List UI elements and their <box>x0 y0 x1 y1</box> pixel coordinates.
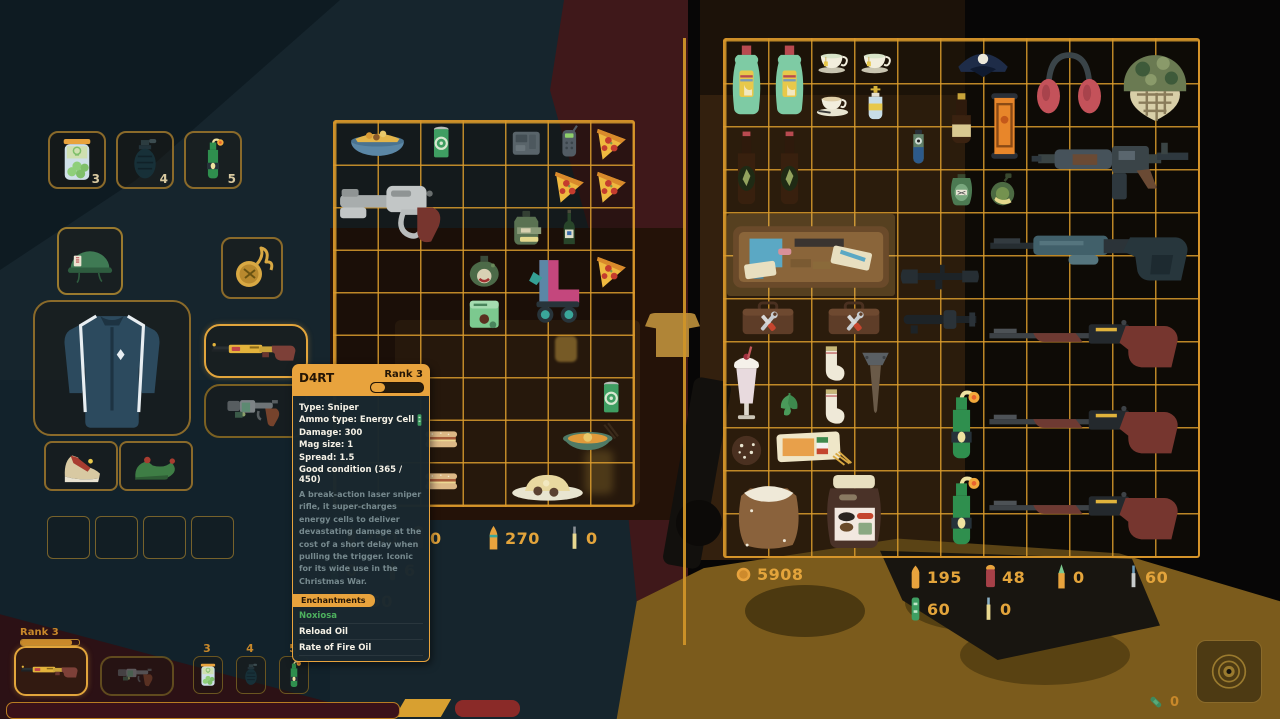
inventory-item-hunting-rifle[interactable] <box>983 384 1198 470</box>
inventory-item-suppressor[interactable] <box>897 298 983 341</box>
inventory-item-assault-rifle[interactable] <box>1026 126 1198 212</box>
grenade-icon <box>240 660 262 690</box>
inventory-item-eye-bottle[interactable] <box>897 126 940 169</box>
item-tooltip: D4RT Rank 3 Type: SniperAmmo type: Energ… <box>292 364 430 662</box>
ammo-count: 195 <box>927 568 962 587</box>
enchantment-noxiosa: Noxiosa <box>299 608 423 624</box>
bullet-pistol-icon <box>909 563 922 591</box>
inventory-item-pizza-slice[interactable] <box>548 165 591 208</box>
inventory-item-molotov[interactable] <box>940 470 983 556</box>
inventory-item-sock[interactable] <box>811 341 854 384</box>
inventory-item-sock[interactable] <box>811 384 854 427</box>
stash-ammo-bullet-rifle-pointed: 0 <box>1055 563 1085 591</box>
tooltip-header: D4RT Rank 3 <box>292 364 430 396</box>
coin-icon <box>735 566 752 583</box>
stash-ammo-cell-green: 60 <box>909 595 950 623</box>
item-count: 3 <box>92 172 100 186</box>
tooltip-body: Type: SniperAmmo type: Energy CellDamage… <box>292 396 430 662</box>
tooltip-item-name: D4RT <box>299 371 334 385</box>
game-inventory-screen: { "colors": { "accent_orange": "#d9992b"… <box>0 0 1280 719</box>
hotbar-slot-primary[interactable] <box>14 646 88 696</box>
hud-rank-fill <box>21 640 72 645</box>
ammo-count: 48 <box>1002 568 1025 587</box>
rank-progress-fill <box>371 383 385 392</box>
empty-slot[interactable] <box>95 516 138 559</box>
hud-accent-blob <box>455 700 520 717</box>
ammo-count: 0 <box>586 529 598 548</box>
player-ammo-bullet-rifle: 270 <box>487 524 540 552</box>
inventory-item-small-bottle[interactable] <box>940 83 983 169</box>
stash-inventory-grid[interactable] <box>723 38 1200 558</box>
inventory-item-drill-case[interactable] <box>725 212 897 298</box>
health-bar <box>6 702 400 719</box>
pocket-watch-icon <box>227 243 277 293</box>
tooltip-description: A break-action laser sniper rifle, it su… <box>299 489 423 588</box>
elf-shoe-icon <box>125 447 187 485</box>
bullet-thin-blue-icon <box>1127 563 1140 591</box>
tooltip-stat: Type: Sniper <box>299 403 423 413</box>
d4rt-rifle-icon <box>210 330 302 372</box>
quick-slot-grenade[interactable]: 4 <box>116 131 174 189</box>
empty-slot[interactable] <box>47 516 90 559</box>
inventory-item-spike[interactable] <box>854 341 897 427</box>
jacket-icon <box>53 304 171 432</box>
inventory-item-camo-helmet[interactable] <box>1112 40 1198 126</box>
equip-slot-shoe-left[interactable] <box>44 441 118 491</box>
equip-slot-head[interactable] <box>57 227 123 295</box>
ammo-count: 60 <box>1145 568 1168 587</box>
hotbar-slot-grenade[interactable] <box>236 656 266 694</box>
inventory-item-hunting-rifle[interactable] <box>983 298 1198 384</box>
inventory-item-police-hat[interactable] <box>940 40 1026 83</box>
quick-slot-molotov[interactable]: 5 <box>184 131 242 189</box>
bg-hand-shade1 <box>745 585 865 637</box>
hotbar-slot-secondary[interactable] <box>100 656 174 696</box>
tooltip-stats: Type: SniperAmmo type: Energy CellDamage… <box>299 403 423 486</box>
bandage-count: 0 <box>1170 695 1179 710</box>
inventory-item-canteen[interactable] <box>983 169 1026 212</box>
player-ammo-bullet-thin: 0 <box>568 524 598 552</box>
hotbar-key-label: 3 <box>193 642 221 655</box>
inventory-item-pizza-slice[interactable] <box>590 122 633 165</box>
inventory-item-beer-bottle[interactable] <box>768 126 811 212</box>
inventory-item-soup-bowl[interactable] <box>548 420 633 463</box>
equip-slot-shoe-right[interactable] <box>119 441 193 491</box>
tooltip-stat: Ammo type: Energy Cell <box>299 415 423 425</box>
ammo-count: 0 <box>1073 568 1085 587</box>
hud-rank-bar <box>20 639 80 646</box>
sneaker-icon <box>50 447 112 485</box>
inventory-item-dish-soap[interactable] <box>725 40 768 126</box>
d4rt-rifle-icon <box>20 652 82 690</box>
bandage-icon <box>1148 694 1164 710</box>
stash-money: 5908 <box>735 565 804 584</box>
inventory-item-pasta-pack[interactable] <box>768 427 854 470</box>
inventory-item-pizza-slice[interactable] <box>590 165 633 208</box>
ammo-count: 0 <box>430 529 442 548</box>
ammo-count: 0 <box>1000 600 1012 619</box>
inventory-item-rice-plate[interactable] <box>505 462 590 505</box>
inventory-item-mint-leaf[interactable] <box>768 384 811 427</box>
inventory-item-detector[interactable] <box>548 122 591 165</box>
enchantment-rate-of-fire-oil: Rate of Fire Oil <box>299 640 423 656</box>
tooltip-stat: Spread: 1.5 <box>299 453 423 463</box>
quick-slot-pickle-jar[interactable]: 3 <box>48 131 106 189</box>
inventory-item-molotov[interactable] <box>940 384 983 470</box>
inventory-item-cookie[interactable] <box>725 427 768 470</box>
inventory-item-choco-jar[interactable] <box>811 470 897 556</box>
hud-rank-label: Rank 3 <box>20 627 59 638</box>
inventory-item-hunting-rifle[interactable] <box>983 470 1198 556</box>
inventory-item-toolbox[interactable] <box>811 298 897 341</box>
enchantments-list: NoxiosaReload OilRate of Fire Oil <box>299 608 423 656</box>
inventory-item-beer-bottle[interactable] <box>725 126 768 212</box>
bandage-counter: 0 <box>1148 694 1179 710</box>
tooltip-stat: Mag size: 1 <box>299 440 423 450</box>
inventory-item-teacup[interactable] <box>854 40 897 83</box>
ammo-count: 270 <box>505 529 540 548</box>
empty-slot[interactable] <box>191 516 234 559</box>
rank-progress-bar <box>370 382 424 393</box>
inventory-item-flour-sack[interactable] <box>725 470 811 556</box>
molotov-icon <box>283 660 305 690</box>
equip-slot-trinket[interactable] <box>221 237 283 299</box>
stash-ammo-bullet-pistol: 195 <box>909 563 962 591</box>
tooltip-stat: Damage: 300 <box>299 428 423 438</box>
bullet-thin-gray-icon <box>982 595 995 623</box>
inventory-item-bowl-of-chips[interactable] <box>335 122 420 165</box>
inventory-item-ammo-box[interactable] <box>463 292 506 335</box>
empty-slot[interactable] <box>143 516 186 559</box>
money-count: 5908 <box>757 565 804 584</box>
item-count: 5 <box>228 172 236 186</box>
inventory-item-milkshake[interactable] <box>725 341 768 427</box>
inventory-item-flask[interactable] <box>940 169 983 212</box>
ammo-count: 60 <box>927 600 950 619</box>
inventory-item-teacup[interactable] <box>811 40 854 83</box>
stash-ammo-shell-red: 48 <box>984 563 1025 591</box>
radio-record-button[interactable] <box>1196 640 1262 703</box>
hotbar-key-label: 4 <box>236 642 264 655</box>
stash-ammo-bullet-thin-gray: 0 <box>982 595 1012 623</box>
inventory-item-green-can[interactable] <box>420 122 463 165</box>
cell-green-icon <box>909 595 922 623</box>
revolver-icon <box>210 390 302 432</box>
item-count: 4 <box>160 172 168 186</box>
bullet-rifle-icon <box>487 524 500 552</box>
inventory-item-wine-bottle[interactable] <box>548 207 591 250</box>
shell-red-icon <box>984 563 997 591</box>
inventory-item-gray-device[interactable] <box>505 122 548 165</box>
inventory-item-coffee-cup[interactable] <box>811 83 854 126</box>
inventory-item-toolbox[interactable] <box>725 298 811 341</box>
inventory-item-pizza-slice[interactable] <box>590 250 633 293</box>
enchantments-label: Enchantments <box>293 594 375 607</box>
record-icon <box>1205 649 1253 694</box>
inventory-item-roller-skates[interactable] <box>505 250 590 335</box>
inventory-item-scope[interactable] <box>897 255 983 298</box>
pickle-jar-icon <box>197 660 219 690</box>
inventory-item-dish-soap[interactable] <box>768 40 811 126</box>
enchantment-reload-oil: Reload Oil <box>299 624 423 640</box>
inventory-item-lever-rifle[interactable] <box>983 212 1198 298</box>
tooltip-stat: Good condition (365 / 450) <box>299 465 423 485</box>
inventory-item-scroll-ticket[interactable] <box>983 83 1026 169</box>
panel-divider <box>683 38 686 645</box>
inventory-item-green-can[interactable] <box>590 377 633 420</box>
energy-cell-icon <box>416 413 423 427</box>
inventory-item-grog-jug[interactable] <box>463 250 506 293</box>
inventory-item-holy-water[interactable] <box>854 83 897 126</box>
bullet-rifle-pointed-icon <box>1055 563 1068 591</box>
revolver-icon <box>106 662 168 690</box>
equip-slot-body[interactable] <box>33 300 191 436</box>
inventory-item-army-flask[interactable] <box>505 207 548 250</box>
bullet-thin-icon <box>568 524 581 552</box>
stash-ammo-bullet-thin-blue: 60 <box>1127 563 1168 591</box>
helmet-icon <box>63 233 117 289</box>
inventory-item-scrap-pistol[interactable] <box>335 165 463 250</box>
tooltip-rank-label: Rank 3 <box>384 369 423 380</box>
inventory-item-earmuffs[interactable] <box>1026 40 1112 126</box>
hotbar-slot-pickle-jar[interactable] <box>193 656 223 694</box>
